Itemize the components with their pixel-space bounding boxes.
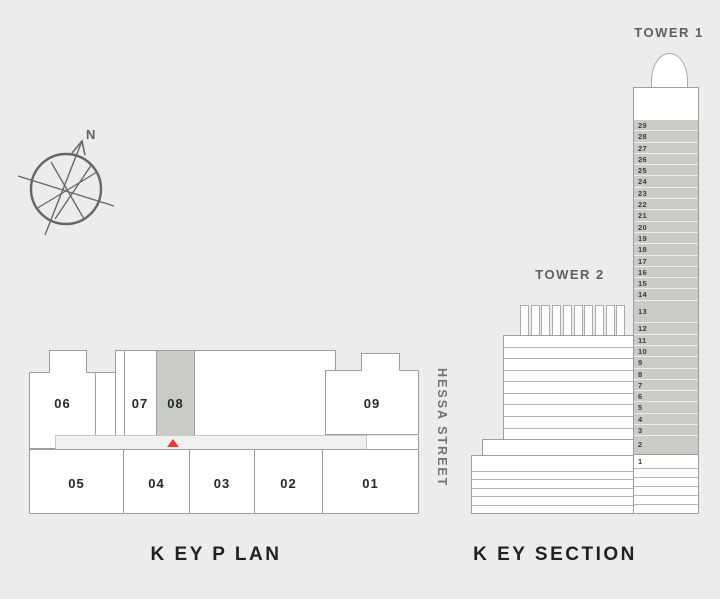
tower1-basement-row: [634, 496, 698, 505]
tower1-floor-15: 15: [634, 278, 698, 289]
tower1-floor-label: 4: [634, 414, 698, 425]
tower1-floor-18: 18: [634, 244, 698, 255]
tower1-floor-label: 21: [634, 210, 698, 221]
north-label: N: [86, 127, 95, 142]
podium-row: [472, 496, 633, 505]
tower1-floor-label: 24: [634, 176, 698, 187]
tower1-floor-26: 26: [634, 154, 698, 165]
tower1-floor-label: 1: [634, 455, 698, 470]
tower1-floor-label: 27: [634, 143, 698, 154]
unit-label-09: 09: [325, 396, 419, 411]
tower2-label: TOWER 2: [505, 267, 635, 282]
tower1-basement-row: [634, 469, 698, 478]
compass-spoke: [36, 172, 97, 209]
unit-01-extension: [367, 436, 419, 450]
tower1-floor-label: 8: [634, 369, 698, 380]
tower1-floor-label: 15: [634, 278, 698, 289]
unit-label-05: 05: [29, 476, 124, 491]
driveway-strip: [55, 435, 367, 450]
tower1-floor-19: 19: [634, 233, 698, 244]
tower1-floor-6: 6: [634, 391, 698, 402]
tower1-floor-13: 13: [634, 301, 698, 324]
tower1-floor-12: 12: [634, 323, 698, 334]
tower2-parapet-tooth: [574, 305, 583, 336]
location-marker-icon: [167, 439, 179, 447]
tower1-floor-7: 7: [634, 380, 698, 391]
tower1-floor-27: 27: [634, 143, 698, 154]
unit-label-07: 07: [124, 396, 156, 411]
tower1-floor-label: 16: [634, 267, 698, 278]
tower1-floor-label: 11: [634, 335, 698, 346]
street-label: HESSA STREET: [431, 368, 449, 500]
tower1-floor-14: 14: [634, 289, 698, 300]
compass-icon: N: [12, 124, 124, 249]
tower1-floor-25: 25: [634, 165, 698, 176]
tower2-step: [482, 439, 634, 456]
tower2-floor-row: [504, 382, 633, 394]
tower1-floor-label: 6: [634, 391, 698, 402]
tower1-floor-label: 2: [634, 436, 698, 455]
tower1-floor-label: 23: [634, 188, 698, 199]
architectural-key-diagram: N 06 07 08 09 05 04 03 02: [0, 0, 720, 599]
tower1-floor-label: 5: [634, 402, 698, 413]
podium-row: [472, 471, 633, 480]
tower2-floor-row: [504, 429, 633, 440]
tower2-floor-row: [504, 348, 633, 360]
tower2-parapet-tooth: [595, 305, 604, 336]
tower2-floor-row: [504, 405, 633, 417]
tower1-dome: [651, 53, 688, 88]
tower2-floor-row: [504, 371, 633, 383]
tower1-floor-label: 26: [634, 154, 698, 165]
tower1-floor-label: 25: [634, 165, 698, 176]
tower1-floor-label: 13: [634, 301, 698, 324]
tower1-floor-label: 10: [634, 346, 698, 357]
tower1-basement-row: [634, 478, 698, 487]
unit-label-06: 06: [29, 396, 96, 411]
tower1-floor-label: 7: [634, 380, 698, 391]
unit-block-07: [124, 351, 157, 435]
unit-label-03: 03: [189, 476, 255, 491]
unit-block-06-bump: [49, 350, 87, 373]
tower2-parapet-tooth: [584, 305, 593, 336]
tower1-floor-label: 28: [634, 131, 698, 142]
tower1-floor-label: 22: [634, 199, 698, 210]
seam-patch: [362, 369, 399, 372]
tower1-floor-2: 2: [634, 436, 698, 455]
podium-row: [472, 505, 633, 514]
tower2-parapet-tooth: [563, 305, 572, 336]
tower2-parapet-tooth: [531, 305, 540, 336]
key-plan-title: K EY P LAN: [66, 544, 366, 566]
key-section-title: K EY SECTION: [405, 544, 705, 566]
upper-row-edge: [335, 350, 336, 371]
tower1-floor-29: 29: [634, 120, 698, 131]
podium-row: [472, 456, 633, 471]
unit-label-08: 08: [156, 396, 195, 411]
tower2-floor-row: [504, 336, 633, 348]
tower1-floor-28: 28: [634, 131, 698, 142]
tower1-column: 29 28 27 26 25 24 23 22 21 20 19 18 17 1…: [633, 120, 699, 514]
tower1-floor-20: 20: [634, 222, 698, 233]
tower1-floor-4: 4: [634, 414, 698, 425]
tower1-roof-box: [633, 87, 699, 121]
tower2-body: [503, 335, 634, 440]
tower2-floor-row: [504, 394, 633, 406]
tower1-floor-16: 16: [634, 267, 698, 278]
tower1-basement-row: [634, 487, 698, 496]
tower2-parapet-tooth: [520, 305, 529, 336]
tower1-floor-label: 29: [634, 120, 698, 131]
tower2-parapet-tooth: [552, 305, 561, 336]
tower1-floor-label: 3: [634, 425, 698, 436]
compass-spoke: [55, 164, 92, 219]
tower1-floor-23: 23: [634, 188, 698, 199]
podium-base: [471, 455, 634, 514]
tower1-floor-label: 14: [634, 289, 698, 300]
tower1-floor-5: 5: [634, 402, 698, 413]
unit-block-08-highlighted: [156, 351, 195, 435]
seam-patch: [50, 371, 86, 374]
tower1-floor-label: 9: [634, 357, 698, 368]
unit-label-01: 01: [322, 476, 419, 491]
tower1-label: TOWER 1: [604, 25, 720, 40]
unit-label-04: 04: [123, 476, 190, 491]
tower1-floor-label: 20: [634, 222, 698, 233]
tower1-floor-21: 21: [634, 210, 698, 221]
tower2-parapet-tooth: [616, 305, 625, 336]
tower1-floor-8: 8: [634, 369, 698, 380]
tower1-floor-10: 10: [634, 346, 698, 357]
tower1-floor-label: 12: [634, 323, 698, 334]
unit-label-02: 02: [254, 476, 323, 491]
podium-row: [472, 479, 633, 488]
tower2-parapet-tooth: [541, 305, 550, 336]
tower1-floor-22: 22: [634, 199, 698, 210]
tower1-floor-1: 1: [634, 455, 698, 470]
tower1-floor-9: 9: [634, 357, 698, 368]
tower1-floor-24: 24: [634, 176, 698, 187]
tower1-floor-label: 17: [634, 256, 698, 267]
tower1-floor-17: 17: [634, 256, 698, 267]
tower1-basement-row: [634, 505, 698, 514]
podium-row: [472, 488, 633, 497]
tower1-floor-11: 11: [634, 335, 698, 346]
tower1-floor-label: 18: [634, 244, 698, 255]
tower2-parapet-tooth: [606, 305, 615, 336]
tower2-floor-row: [504, 359, 633, 371]
tower1-floor-label: 19: [634, 233, 698, 244]
tower2-floor-row: [504, 417, 633, 429]
tower1-floor-3: 3: [634, 425, 698, 436]
